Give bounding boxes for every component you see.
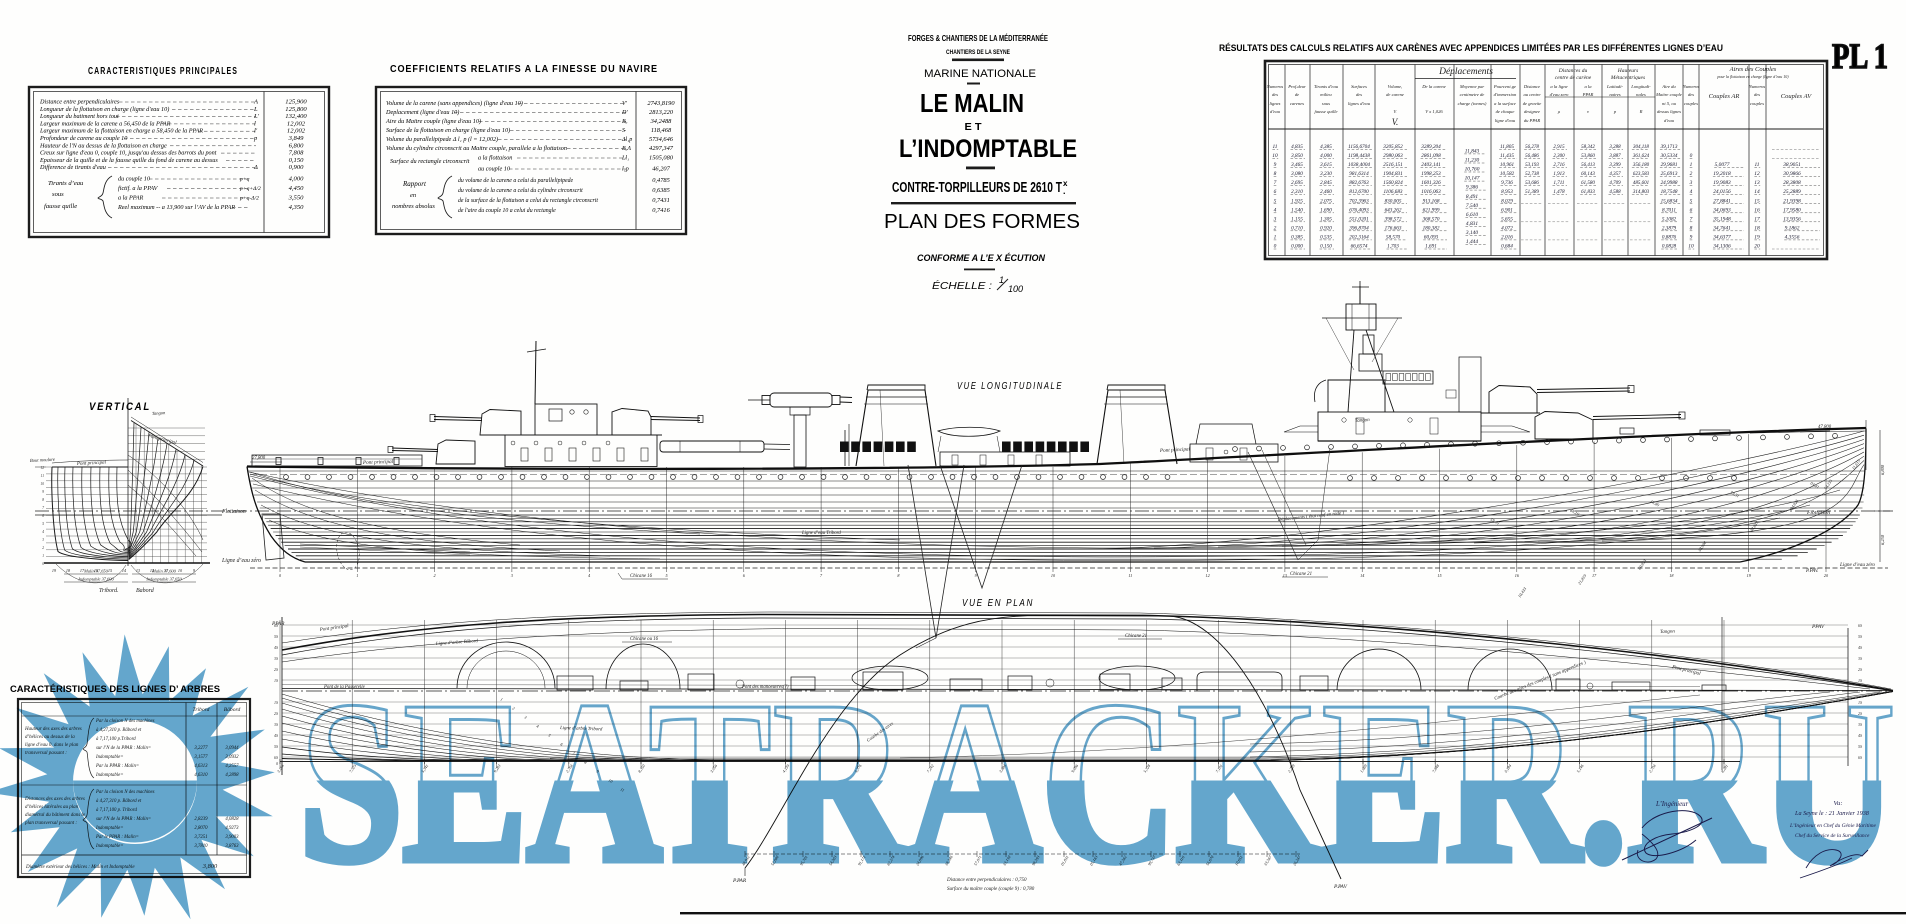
svg-text:de gravite: de gravite bbox=[1523, 101, 1542, 106]
svg-text:a la flottaison: a la flottaison bbox=[478, 155, 512, 162]
svg-text:34,1306: 34,1306 bbox=[1712, 244, 1731, 250]
svg-text:V.: V. bbox=[1392, 117, 1399, 127]
svg-text:PPAR: PPAR bbox=[271, 621, 285, 627]
svg-text:19: 19 bbox=[1754, 235, 1760, 241]
svg-text:l₁p: l₁p bbox=[622, 167, 629, 173]
svg-text:1016,063: 1016,063 bbox=[1421, 189, 1441, 195]
svg-text:34,6377: 34,6377 bbox=[1712, 235, 1731, 241]
svg-text:15: 15 bbox=[108, 568, 112, 573]
svg-text:6: 6 bbox=[1690, 207, 1693, 213]
svg-text:3: 3 bbox=[511, 573, 513, 578]
svg-text:4,835: 4,835 bbox=[1291, 143, 1303, 150]
svg-text:11,843: 11,843 bbox=[1465, 149, 1480, 155]
svg-text:Δ: Δ bbox=[253, 164, 258, 171]
svg-text:11,805: 11,805 bbox=[1500, 144, 1514, 150]
svg-text:8,7011: 8,7011 bbox=[1662, 207, 1676, 213]
svg-text:15: 15 bbox=[1754, 198, 1760, 204]
svg-text:9,1862: 9,1862 bbox=[1785, 225, 1800, 231]
svg-text:34,7641: 34,7641 bbox=[1712, 225, 1731, 231]
svg-text:6: 6 bbox=[1274, 189, 1277, 195]
svg-text:L': L' bbox=[253, 113, 260, 120]
svg-text:E T: E T bbox=[965, 122, 982, 133]
svg-text:11: 11 bbox=[1273, 144, 1278, 150]
svg-text:milieu: milieu bbox=[1320, 92, 1332, 97]
svg-text:Métacentriques: Métacentriques bbox=[1610, 75, 1645, 81]
svg-text:12,002: 12,002 bbox=[287, 128, 306, 135]
svg-text:28,3808: 28,3808 bbox=[1783, 180, 1801, 186]
svg-text:368,570: 368,570 bbox=[1423, 216, 1440, 222]
svg-text:carenes: carenes bbox=[1290, 101, 1304, 106]
svg-text:3: 3 bbox=[1689, 180, 1693, 186]
svg-text:3S: 3S bbox=[274, 656, 278, 661]
svg-text:52,738: 52,738 bbox=[1525, 172, 1539, 177]
svg-text:4,588: 4,588 bbox=[1609, 190, 1621, 195]
svg-text:6S: 6S bbox=[1858, 623, 1862, 628]
svg-text:11,230: 11,230 bbox=[1465, 158, 1480, 164]
svg-text:913,168: 913,168 bbox=[1423, 198, 1440, 204]
svg-text:8,029: 8,029 bbox=[1501, 198, 1513, 204]
svg-text:5734,646: 5734,646 bbox=[649, 136, 674, 143]
svg-text:4,0828: 4,0828 bbox=[225, 817, 239, 822]
svg-text:61,580: 61,580 bbox=[1581, 181, 1595, 186]
svg-text:0,150: 0,150 bbox=[1320, 244, 1332, 250]
svg-text:1505,080: 1505,080 bbox=[649, 155, 674, 162]
svg-text:Epaisseur de la quille et de l: Epaisseur de la quille et de la fausse q… bbox=[39, 157, 218, 164]
svg-text:sous: sous bbox=[52, 191, 64, 198]
svg-text:Couples AR: Couples AR bbox=[1709, 93, 1740, 100]
svg-text:2,075: 2,075 bbox=[1320, 198, 1332, 204]
svg-text:30,5334: 30,5334 bbox=[1661, 152, 1678, 159]
svg-text:1: 1 bbox=[356, 573, 358, 578]
svg-text:7: 7 bbox=[1274, 180, 1277, 186]
svg-text:Numeros: Numeros bbox=[1748, 84, 1766, 89]
svg-text:centre de carène: centre de carène bbox=[1555, 75, 1592, 81]
svg-text:Bₒ: Bₒ bbox=[622, 119, 628, 125]
svg-text:1198,4438: 1198,4438 bbox=[1348, 152, 1370, 159]
svg-text:12,002: 12,002 bbox=[287, 120, 306, 127]
svg-text:Indomptable=: Indomptable= bbox=[95, 773, 123, 778]
svg-text:L’Ingénieur: L’Ingénieur bbox=[1655, 801, 1689, 808]
svg-text:4,450: 4,450 bbox=[289, 185, 305, 192]
svg-text:2S: 2S bbox=[274, 711, 278, 716]
svg-text:du volume de la carene a celui: du volume de la carene a celui du cylind… bbox=[458, 188, 583, 194]
svg-text:396,8704: 396,8704 bbox=[1349, 224, 1369, 231]
svg-text:ligne d'eau: ligne d'eau bbox=[1495, 118, 1516, 123]
svg-text:5S: 5S bbox=[274, 634, 278, 639]
svg-text:2,460: 2,460 bbox=[1320, 188, 1332, 195]
svg-text:180,382: 180,382 bbox=[1423, 225, 1440, 231]
svg-text:fausse quille: fausse quille bbox=[44, 203, 77, 210]
svg-text:Tirants d’eau: Tirants d’eau bbox=[48, 180, 84, 187]
svg-text:Aire du Maitre couple (ligne d: Aire du Maitre couple (ligne d'eau 10) bbox=[385, 118, 481, 125]
svg-text:60,093: 60,093 bbox=[1424, 235, 1439, 241]
svg-text:naires: naires bbox=[1609, 92, 1621, 97]
svg-text:a la surface: a la surface bbox=[1494, 101, 1516, 106]
svg-text:Aire du: Aire du bbox=[1661, 84, 1676, 89]
svg-text:18: 18 bbox=[1754, 225, 1760, 231]
svg-text:4,000: 4,000 bbox=[1320, 152, 1332, 159]
svg-text:Babord: Babord bbox=[136, 588, 155, 594]
svg-text:9,736: 9,736 bbox=[1501, 180, 1513, 186]
svg-text:Chicane 21: Chicane 21 bbox=[1290, 572, 1312, 577]
svg-text:L’INDOMPTABLE: L’INDOMPTABLE bbox=[899, 135, 1077, 163]
svg-text:2,016: 2,016 bbox=[1501, 235, 1513, 241]
svg-text:202,3164: 202,3164 bbox=[1349, 234, 1369, 241]
svg-text:Tangon: Tangon bbox=[1355, 418, 1371, 424]
svg-text:1106,683: 1106,683 bbox=[1383, 189, 1402, 195]
svg-text:11: 11 bbox=[1128, 573, 1132, 578]
svg-text:24,0156: 24,0156 bbox=[1713, 189, 1731, 195]
svg-text:p+q: p+q bbox=[239, 177, 250, 183]
svg-text:2813,220: 2813,220 bbox=[649, 109, 674, 116]
svg-text:10: 10 bbox=[1272, 153, 1278, 159]
svg-text:fausse quille: fausse quille bbox=[1314, 109, 1337, 114]
svg-text:p+q+Δ/2: p+q+Δ/2 bbox=[239, 186, 261, 192]
svg-text:a la ligne: a la ligne bbox=[1550, 84, 1567, 89]
svg-text:Prof.deur: Prof.deur bbox=[1287, 84, 1306, 89]
svg-text:0,535: 0,535 bbox=[1320, 235, 1332, 241]
svg-text:Difference de tirants d'eau: Difference de tirants d'eau bbox=[39, 164, 106, 171]
svg-text:1,444: 1,444 bbox=[1466, 239, 1478, 245]
svg-text:nales: nales bbox=[1636, 92, 1646, 97]
svg-text:Tirants d'eau: Tirants d'eau bbox=[1314, 84, 1339, 89]
svg-text:621,999: 621,999 bbox=[1423, 207, 1440, 213]
svg-text:46,207: 46,207 bbox=[652, 166, 670, 173]
svg-text:Ll₁: Ll₁ bbox=[621, 156, 629, 162]
svg-text:PLAN DES FORMES: PLAN DES FORMES bbox=[884, 211, 1080, 233]
svg-text:1: 1 bbox=[42, 554, 44, 558]
svg-text:6,901: 6,901 bbox=[1501, 207, 1513, 213]
svg-text:De la carene: De la carene bbox=[1421, 84, 1446, 89]
svg-text:2,3879: 2,3879 bbox=[1662, 225, 1677, 231]
svg-text:20: 20 bbox=[1754, 244, 1760, 250]
svg-text:14: 14 bbox=[1754, 189, 1760, 195]
svg-text:53,686: 53,686 bbox=[1525, 181, 1539, 186]
svg-text:10: 10 bbox=[1688, 244, 1694, 250]
svg-text:Pourcent.ge: Pourcent.ge bbox=[1493, 84, 1516, 89]
svg-text:61,833: 61,833 bbox=[1581, 190, 1595, 195]
svg-text:1998,253: 1998,253 bbox=[1421, 171, 1441, 177]
svg-text:PPAR: PPAR bbox=[1582, 92, 1594, 97]
svg-text:3: 3 bbox=[42, 538, 44, 542]
svg-text:24,9988: 24,9988 bbox=[1661, 179, 1678, 186]
svg-text:29,9681: 29,9681 bbox=[1661, 162, 1678, 168]
svg-text:BₒΛ: BₒΛ bbox=[622, 146, 631, 152]
svg-text:S: S bbox=[622, 128, 625, 134]
svg-text:11: 11 bbox=[1755, 162, 1760, 168]
svg-text:de l'aire du couple 10 a celui: de l'aire du couple 10 a celui du rectan… bbox=[458, 208, 556, 214]
svg-text:6,610: 6,610 bbox=[1466, 212, 1478, 218]
svg-text:2,310: 2,310 bbox=[1291, 189, 1303, 195]
svg-text:2,845: 2,845 bbox=[1320, 179, 1332, 186]
svg-text:de carene: de carene bbox=[1386, 92, 1404, 97]
svg-text:643,262: 643,262 bbox=[1385, 206, 1402, 213]
svg-text:7,540: 7,540 bbox=[1466, 203, 1478, 209]
svg-text:1038,4004: 1038,4004 bbox=[1348, 161, 1370, 168]
svg-text:Maitre couple: Maitre couple bbox=[1655, 92, 1682, 97]
svg-text:dessus lignes: dessus lignes bbox=[1657, 109, 1681, 114]
svg-text:0: 0 bbox=[1274, 244, 1277, 250]
svg-text:p+q-Δ/2: p+q-Δ/2 bbox=[239, 196, 259, 202]
svg-text:34,2488: 34,2488 bbox=[650, 118, 673, 125]
svg-text:27,8841: 27,8841 bbox=[1713, 198, 1731, 204]
svg-text:l: l bbox=[254, 120, 256, 127]
svg-text:fictif. a la PPAV: fictif. a la PPAV bbox=[118, 185, 159, 192]
svg-text:Tangon: Tangon bbox=[1660, 629, 1675, 635]
svg-text:Volume de la carene (sans appe: Volume de la carene (sans appendices) (l… bbox=[386, 100, 523, 107]
svg-text:4,831: 4,831 bbox=[1466, 221, 1478, 227]
svg-text:66,6574: 66,6574 bbox=[1351, 243, 1368, 250]
svg-text:4,072: 4,072 bbox=[1501, 224, 1513, 231]
svg-text:Distances du: Distances du bbox=[1558, 68, 1588, 74]
svg-text:5: 5 bbox=[665, 573, 667, 578]
svg-text:17: 17 bbox=[1754, 216, 1760, 222]
svg-text:551,0201: 551,0201 bbox=[1349, 216, 1369, 222]
svg-text:5,1082: 5,1082 bbox=[1662, 216, 1677, 222]
svg-text:0,920: 0,920 bbox=[1320, 225, 1332, 231]
svg-text:charge (tonnes): charge (tonnes) bbox=[1458, 101, 1487, 106]
svg-text:Reel maximum -- a 13,900 sur l: Reel maximum -- a 13,900 sur l’AV de la … bbox=[117, 204, 235, 211]
svg-text:7,808: 7,808 bbox=[289, 150, 305, 157]
svg-text:PPAV: PPAV bbox=[1811, 624, 1825, 630]
svg-text:3289,204: 3289,204 bbox=[1421, 143, 1441, 150]
svg-text:0,7416: 0,7416 bbox=[652, 207, 670, 214]
svg-text:125,900: 125,900 bbox=[285, 99, 307, 106]
svg-text:RÉSULTATS DES CALCULS RELAT: RÉSULTATS DES CALCULS RELATIFS AUX CARÈN… bbox=[1219, 43, 1723, 54]
svg-text:702,3963: 702,3963 bbox=[1349, 198, 1369, 204]
svg-text:a la: a la bbox=[1584, 84, 1592, 89]
svg-text:4S: 4S bbox=[274, 733, 278, 738]
svg-text:1904,831: 1904,831 bbox=[1383, 170, 1403, 177]
svg-text:53,193: 53,193 bbox=[1525, 163, 1539, 168]
svg-text:176,663: 176,663 bbox=[1385, 225, 1402, 231]
svg-text:des: des bbox=[1272, 92, 1278, 97]
svg-text:10,147: 10,147 bbox=[1465, 176, 1480, 182]
svg-text:314,803: 314,803 bbox=[1633, 190, 1650, 195]
svg-text:des: des bbox=[1688, 92, 1694, 97]
svg-text:1,925: 1,925 bbox=[1291, 198, 1303, 204]
svg-text:CONTRE-TORPILLEURS DE 2610 T: CONTRE-TORPILLEURS DE 2610 T bbox=[892, 180, 1062, 196]
svg-text:9,386: 9,386 bbox=[1466, 185, 1478, 191]
svg-text:à 7,17,100 p.Tribord: à 7,17,100 p.Tribord bbox=[96, 737, 136, 742]
svg-text:398,572: 398,572 bbox=[1385, 216, 1402, 222]
svg-text:2S: 2S bbox=[274, 667, 278, 672]
svg-text:19,2018: 19,2018 bbox=[1713, 171, 1731, 177]
svg-text:Surfaces: Surfaces bbox=[1351, 84, 1367, 89]
svg-text:Deplacement (ligne d'eau 10): Deplacement (ligne d'eau 10) bbox=[385, 109, 459, 116]
svg-text:lignes d'eau: lignes d'eau bbox=[1348, 101, 1371, 106]
svg-text:a la PPAR: a la PPAR bbox=[118, 195, 144, 202]
svg-text:9: 9 bbox=[1690, 235, 1693, 241]
svg-text:Volume du cylindre circonscrit: Volume du cylindre circonscrit au Maitre… bbox=[386, 145, 567, 152]
svg-text:Numeros: Numeros bbox=[1266, 84, 1284, 89]
svg-text:COEFFICIENTS RELATIFS A LA: COEFFICIENTS RELATIFS A LA FINESSE DU NA… bbox=[390, 63, 658, 75]
svg-text:Numeros: Numeros bbox=[1682, 84, 1700, 89]
svg-text:de: de bbox=[1295, 92, 1299, 97]
svg-text:FORGES & CHANTIERS DE LA MÉDIT: FORGES & CHANTIERS DE LA MÉDITERRANÉE bbox=[908, 33, 1048, 43]
svg-text:0,385: 0,385 bbox=[1291, 235, 1303, 241]
svg-text:0,900: 0,900 bbox=[289, 164, 305, 171]
svg-text:Latitudi-: Latitudi- bbox=[1606, 84, 1624, 89]
svg-text:P.PAV.: P.PAV. bbox=[1805, 569, 1819, 574]
svg-text:0,8876: 0,8876 bbox=[1662, 235, 1677, 241]
svg-text:4: 4 bbox=[1274, 207, 1277, 213]
svg-text:Par la PPAR : Malin=: Par la PPAR : Malin= bbox=[95, 764, 139, 769]
svg-text:125,800: 125,800 bbox=[285, 106, 307, 113]
svg-text:8: 8 bbox=[1690, 225, 1693, 231]
svg-text:830,005: 830,005 bbox=[1385, 198, 1402, 204]
svg-text:21,9398: 21,9398 bbox=[1783, 198, 1801, 204]
svg-text:Chicane 21: Chicane 21 bbox=[1125, 634, 1147, 639]
svg-text:0,7431: 0,7431 bbox=[652, 197, 670, 204]
svg-text:2403,141: 2403,141 bbox=[1421, 161, 1441, 168]
svg-text:0,6385: 0,6385 bbox=[652, 187, 670, 194]
svg-text:0,710: 0,710 bbox=[1291, 225, 1303, 231]
svg-text:0: 0 bbox=[276, 761, 278, 766]
svg-text:1,155: 1,155 bbox=[1291, 216, 1303, 222]
svg-text:.: . bbox=[1063, 186, 1066, 196]
svg-text:Indomptable=: Indomptable= bbox=[95, 755, 123, 760]
svg-text:A: A bbox=[253, 99, 258, 106]
svg-text:VUE LONGITUDINALE: VUE LONGITUDINALE bbox=[957, 381, 1063, 392]
svg-text:Ligne d’eau zéro: Ligne d’eau zéro bbox=[1839, 562, 1875, 568]
svg-text:sous: sous bbox=[1322, 101, 1330, 106]
svg-text:39,1713: 39,1713 bbox=[1661, 144, 1678, 150]
svg-text:1560,824: 1560,824 bbox=[1383, 179, 1403, 186]
svg-text:des: des bbox=[1754, 92, 1760, 97]
svg-text:8,491: 8,491 bbox=[1466, 194, 1478, 200]
svg-text:4: 4 bbox=[1690, 189, 1693, 195]
svg-text:D': D' bbox=[621, 110, 628, 116]
svg-text:MARINE NATIONALE: MARINE NATIONALE bbox=[924, 68, 1036, 80]
svg-text:10,760: 10,760 bbox=[1465, 167, 1480, 173]
svg-text:au centre: au centre bbox=[1523, 92, 1540, 97]
svg-text:5: 5 bbox=[42, 522, 44, 526]
svg-text:de la surface de la flottaison: de la surface de la flottaison a celui d… bbox=[458, 197, 598, 204]
svg-text:7: 7 bbox=[1690, 216, 1693, 222]
svg-text:3S: 3S bbox=[274, 722, 278, 727]
svg-text:3,615: 3,615 bbox=[1320, 162, 1332, 168]
svg-text:8: 8 bbox=[1274, 171, 1277, 177]
svg-text:1,703: 1,703 bbox=[1387, 244, 1399, 250]
svg-text:30,9866: 30,9866 bbox=[1782, 171, 1801, 177]
svg-text:Δl₁p: Δl₁p bbox=[621, 137, 632, 143]
svg-text:18,7548: 18,7548 bbox=[1661, 188, 1678, 195]
svg-text:Couples AV: Couples AV bbox=[1781, 93, 1812, 100]
svg-text:4,385: 4,385 bbox=[1320, 143, 1332, 150]
svg-text:9: 9 bbox=[1274, 162, 1277, 168]
svg-text:19,9083: 19,9083 bbox=[1713, 180, 1731, 186]
svg-text:Longueur du batiment hors tout: Longueur du batiment hors tout bbox=[39, 113, 119, 120]
svg-text:Moyenne par: Moyenne par bbox=[1459, 84, 1485, 89]
svg-text:812,6700: 812,6700 bbox=[1349, 189, 1369, 195]
svg-text:Hauteur de l'N au dessus de la: Hauteur de l'N au dessus de la flottaiso… bbox=[39, 142, 167, 149]
svg-text:Rapport: Rapport bbox=[402, 180, 427, 188]
svg-text:3,849: 3,849 bbox=[288, 135, 305, 142]
svg-text:35,1948: 35,1948 bbox=[1712, 216, 1731, 222]
svg-text:Largeur maximum de la flottais: Largeur maximum de la flottaison en char… bbox=[39, 128, 203, 135]
svg-text:VERTICAL: VERTICAL bbox=[89, 401, 151, 413]
svg-text:882,6763: 882,6763 bbox=[1349, 180, 1369, 186]
svg-text:56,413: 56,413 bbox=[1581, 163, 1595, 168]
svg-text:L: L bbox=[253, 106, 258, 113]
svg-text:100: 100 bbox=[1008, 284, 1023, 294]
svg-text:Flottaison: Flottaison bbox=[221, 509, 246, 515]
svg-text:0,684: 0,684 bbox=[1501, 243, 1513, 250]
svg-text:1,691: 1,691 bbox=[1425, 244, 1437, 250]
svg-text:Distance: Distance bbox=[1523, 84, 1540, 89]
svg-text:Tribord.: Tribord. bbox=[99, 588, 119, 594]
svg-text:8,953: 8,953 bbox=[1501, 189, 1513, 195]
svg-text:38,9051: 38,9051 bbox=[1782, 162, 1801, 168]
svg-text:Creux sur ligne d'eau 0, coupl: Creux sur ligne d'eau 0, couple 10, jusq… bbox=[40, 150, 217, 157]
svg-text:d'eau: d'eau bbox=[1664, 118, 1675, 123]
svg-text:PL 1: PL 1 bbox=[1832, 36, 1888, 76]
svg-text:1S: 1S bbox=[274, 678, 278, 683]
svg-text:6S: 6S bbox=[274, 755, 278, 760]
svg-text:5S: 5S bbox=[1858, 634, 1862, 639]
svg-text:en: en bbox=[410, 192, 416, 199]
svg-text:2,695: 2,695 bbox=[1291, 180, 1303, 186]
svg-text:12: 12 bbox=[1754, 171, 1760, 177]
svg-text:4297,347: 4297,347 bbox=[649, 145, 674, 152]
svg-text:1,478: 1,478 bbox=[1553, 190, 1565, 195]
svg-text:981,6314: 981,6314 bbox=[1349, 170, 1369, 177]
svg-text:2861,098: 2861,098 bbox=[1421, 153, 1441, 159]
svg-text:1,305: 1,305 bbox=[1320, 216, 1332, 222]
svg-text:17,9580: 17,9580 bbox=[1783, 207, 1801, 213]
svg-text:Chicane ou 16: Chicane ou 16 bbox=[630, 637, 659, 642]
svg-text:VUE EN PLAN: VUE EN PLAN bbox=[962, 598, 1034, 609]
svg-text:13,9356: 13,9356 bbox=[1783, 216, 1801, 222]
svg-text:56,486: 56,486 bbox=[1525, 154, 1539, 159]
svg-text:13: 13 bbox=[1754, 180, 1760, 186]
svg-text:lignes: lignes bbox=[1270, 101, 1281, 106]
svg-text:ÉCHELLE :: ÉCHELLE : bbox=[932, 279, 992, 292]
svg-text:Profondeur de carene au couple: Profondeur de carene au couple 10 bbox=[39, 135, 128, 142]
svg-text:11: 11 bbox=[41, 474, 45, 478]
svg-text:3,230: 3,230 bbox=[1320, 171, 1332, 177]
svg-text:47,800: 47,800 bbox=[1818, 425, 1832, 430]
svg-text:1,690: 1,690 bbox=[1320, 207, 1332, 213]
svg-text:CONFORME A L’E X ÉCUTION: CONFORME A L’E X ÉCUTION bbox=[917, 253, 1046, 264]
svg-text:0: 0 bbox=[1690, 153, 1693, 159]
svg-text:centimetre de: centimetre de bbox=[1460, 92, 1485, 97]
svg-text:Distance entre perpendiculaire: Distance entre perpendiculaires bbox=[39, 99, 120, 106]
svg-text:Volume du parallelipipede Δ l: Volume du parallelipipede Δ l₁ p (l = 12… bbox=[386, 136, 498, 143]
svg-text:couples: couples bbox=[1750, 101, 1764, 106]
svg-text:3,465: 3,465 bbox=[1291, 161, 1303, 168]
svg-text:1S: 1S bbox=[274, 700, 278, 705]
svg-text:10,582: 10,582 bbox=[1500, 171, 1515, 177]
svg-text:du volume de la carene a celui: du volume de la carene a celui du parall… bbox=[458, 178, 573, 184]
svg-text:11,435: 11,435 bbox=[1500, 152, 1514, 159]
svg-text:58,570: 58,570 bbox=[1386, 235, 1401, 241]
svg-text:au couple 10: au couple 10 bbox=[478, 166, 511, 173]
svg-text:118,468: 118,468 bbox=[651, 127, 672, 134]
svg-text:12: 12 bbox=[40, 466, 44, 470]
svg-text:1601,326: 1601,326 bbox=[1421, 180, 1441, 186]
svg-text:5: 5 bbox=[1690, 198, 1693, 204]
svg-text:Ligne d’eau zéro: Ligne d’eau zéro bbox=[221, 558, 261, 564]
svg-text:Surface du rectangle circonscr: Surface du rectangle circonscrit bbox=[390, 158, 470, 165]
svg-text:Longitudi-: Longitudi- bbox=[1630, 84, 1651, 89]
svg-text:132,400: 132,400 bbox=[285, 113, 307, 120]
svg-text:676,4093: 676,4093 bbox=[1349, 206, 1369, 213]
svg-text:0,0828: 0,0828 bbox=[1662, 244, 1677, 250]
svg-text:designee: designee bbox=[1524, 109, 1540, 114]
svg-text:4: 4 bbox=[42, 530, 44, 534]
